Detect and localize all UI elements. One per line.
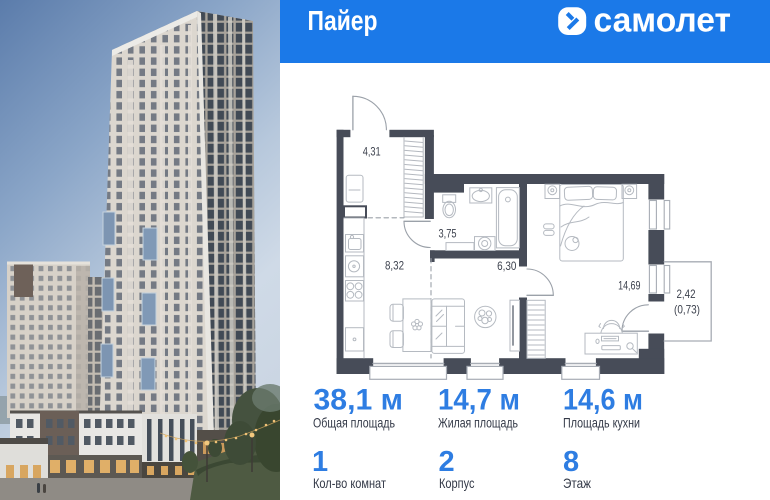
svg-text:1: 1 <box>312 446 328 478</box>
svg-text:Пайер: Пайер <box>308 5 378 36</box>
svg-text:(0,73): (0,73) <box>674 302 700 316</box>
svg-text:2: 2 <box>439 446 455 478</box>
svg-text:Площадь кухни: Площадь кухни <box>563 414 640 430</box>
svg-text:Жилая площадь: Жилая площадь <box>438 414 518 430</box>
svg-text:38,1 м: 38,1 м <box>314 384 404 417</box>
svg-text:8: 8 <box>563 446 579 478</box>
svg-text:14,6 м: 14,6 м <box>563 384 643 417</box>
svg-text:14,69: 14,69 <box>618 279 641 293</box>
svg-text:самолет: самолет <box>594 1 732 39</box>
svg-text:8,32: 8,32 <box>385 258 404 272</box>
svg-text:Этаж: Этаж <box>563 475 592 491</box>
svg-text:14,7 м: 14,7 м <box>438 384 520 417</box>
svg-text:3,75: 3,75 <box>439 226 457 240</box>
svg-text:Кол-во комнат: Кол-во комнат <box>313 475 386 491</box>
svg-text:6,30: 6,30 <box>497 259 517 273</box>
svg-text:4,31: 4,31 <box>363 144 381 158</box>
svg-text:Общая площадь: Общая площадь <box>313 414 395 430</box>
svg-text:2,42: 2,42 <box>677 287 696 301</box>
svg-text:Корпус: Корпус <box>439 475 475 491</box>
